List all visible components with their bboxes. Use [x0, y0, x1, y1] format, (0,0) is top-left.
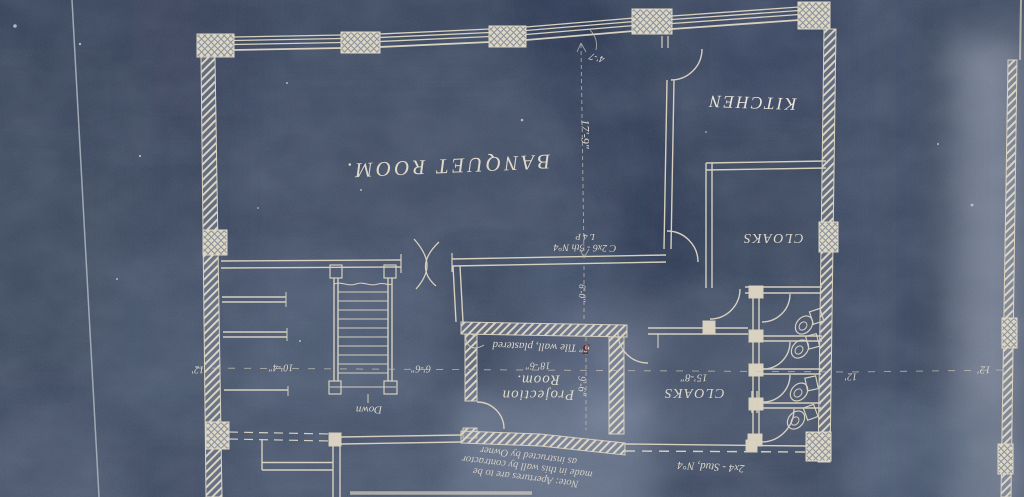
svg-text:12': 12' — [977, 363, 991, 375]
svg-text:L 4 P: L 4 P — [575, 232, 596, 242]
svg-text:Down: Down — [355, 403, 383, 415]
svg-text:CLOAKS: CLOAKS — [663, 385, 724, 400]
svg-text:6'-6": 6'-6" — [410, 363, 430, 374]
svg-text:10'-4": 10'-4" — [268, 362, 293, 373]
svg-text:Room.: Room. — [516, 372, 561, 388]
svg-text:5: 5 — [582, 341, 590, 357]
svg-text:17'-9": 17'-9" — [578, 119, 592, 150]
svg-text:18'-6": 18'-6" — [525, 360, 550, 371]
svg-text:6'-0": 6'-0" — [577, 284, 587, 302]
svg-text:15'-8": 15'-8" — [680, 371, 708, 383]
svg-text:KITCHEN: KITCHEN — [707, 91, 798, 114]
svg-text:9'-6": 9'-6" — [576, 376, 587, 396]
svg-text:C 2x6 - 5th N°4: C 2x6 - 5th N°4 — [553, 241, 616, 253]
svg-text:12': 12' — [844, 371, 857, 382]
svg-text:12': 12' — [191, 364, 204, 375]
svg-text:CLOAKS: CLOAKS — [742, 230, 803, 245]
svg-text:Projection: Projection — [502, 387, 576, 403]
